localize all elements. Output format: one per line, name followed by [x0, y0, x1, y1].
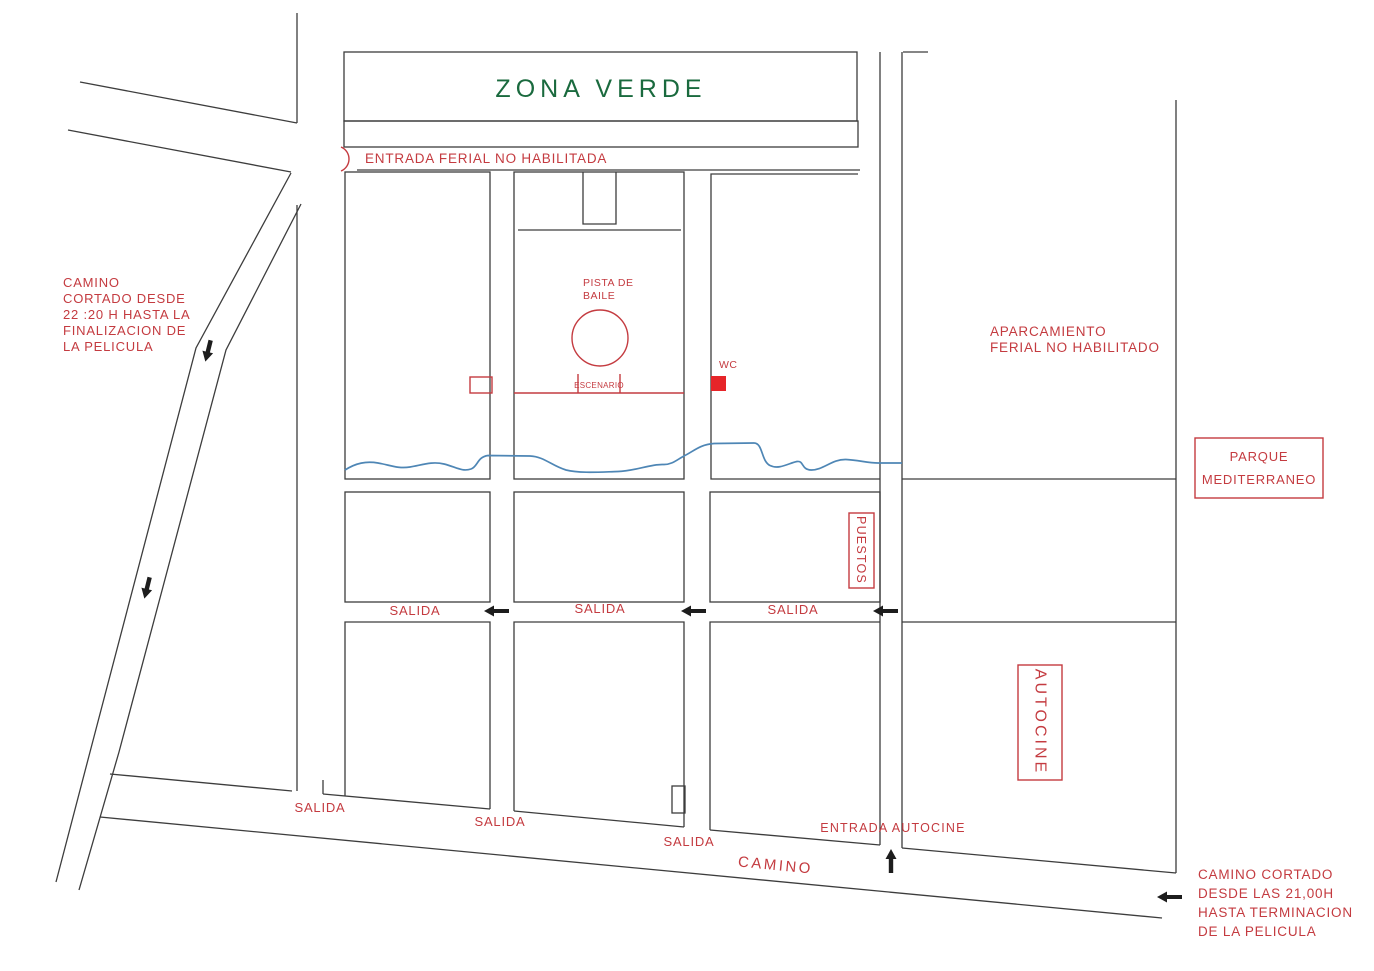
salida-label: SALIDA: [389, 603, 440, 618]
fairground-map: ZONA VERDE ENTRADA FERIAL NO HABILITADA …: [0, 0, 1374, 971]
label-line: APARCAMIENTO: [990, 324, 1106, 339]
aparcamiento-label: APARCAMIENTO FERIAL NO HABILITADO: [990, 324, 1160, 355]
stream-line: [345, 443, 902, 472]
zona-verde-title: ZONA VERDE: [495, 75, 706, 103]
escenario-label: ESCENARIO: [574, 381, 624, 390]
road-line: [68, 130, 291, 172]
block-outline: [514, 172, 684, 479]
block-notch: [583, 172, 616, 224]
left-road-closure-note: CAMINO CORTADO DESDE 22 :20 H HASTA LA F…: [63, 275, 191, 354]
note-line: CAMINO CORTADO: [1198, 867, 1333, 882]
autocine-block-bottom: [902, 848, 1176, 873]
block-outline: [711, 174, 880, 479]
bottom-road-line: [100, 817, 1162, 918]
label-line: PARQUE: [1230, 449, 1289, 464]
salida-labels-mid: SALIDA SALIDA SALIDA: [389, 601, 818, 618]
arrow-left-icon: [484, 606, 509, 617]
salida-label: SALIDA: [294, 800, 345, 815]
block-outline: [345, 622, 490, 809]
block-outline: [710, 622, 880, 830]
map-canvas: ZONA VERDE ENTRADA FERIAL NO HABILITADA …: [0, 0, 1374, 971]
note-line: FINALIZACION DE: [63, 323, 186, 338]
direction-arrows: [139, 339, 1182, 903]
label-line: MEDITERRANEO: [1202, 472, 1316, 487]
zona-verde-strip: [344, 121, 858, 147]
entrada-autocine-label: ENTRADA AUTOCINE: [820, 821, 965, 835]
parque-box: [1195, 438, 1323, 498]
arrow-left-icon: [873, 606, 898, 617]
pista-de-baile-label: PISTA DE BAILE: [583, 277, 634, 302]
salida-label: SALIDA: [474, 814, 525, 829]
block-outline: [514, 622, 684, 827]
block-bottom-edge: [323, 794, 490, 809]
road-line: [80, 82, 297, 123]
salida-label: SALIDA: [574, 601, 625, 616]
block-bottom-edge: [110, 774, 292, 791]
small-red-booth: [470, 377, 492, 393]
note-line: CORTADO DESDE: [63, 291, 186, 306]
autocine-label: AUTOCINE: [1032, 669, 1049, 775]
parque-mediterraneo-label: PARQUE MEDITERRANEO: [1202, 449, 1316, 487]
gate-rect: [672, 786, 685, 813]
arrow-up-icon: [886, 849, 897, 873]
block-outline: [345, 172, 490, 479]
blocks-row-1: [345, 172, 880, 479]
entrance-arc: [341, 147, 349, 171]
arrow-left-icon: [681, 606, 706, 617]
blocks-row-2: [345, 492, 880, 602]
block-outline: [345, 492, 490, 602]
note-line: DE LA PELICULA: [1198, 924, 1317, 939]
blocks-row-3: [110, 622, 880, 845]
wc-square: [711, 376, 726, 391]
wc-label: WC: [719, 359, 738, 371]
arrow-down-icon: [200, 339, 216, 363]
salida-label: SALIDA: [663, 834, 714, 849]
entrada-ferial-label: ENTRADA FERIAL NO HABILITADA: [365, 151, 607, 166]
arrow-down-icon: [139, 576, 155, 600]
block-bottom-edge: [514, 811, 684, 827]
dance-floor-circle: [572, 310, 628, 366]
note-line: LA PELICULA: [63, 339, 153, 354]
label-line: PISTA DE: [583, 277, 634, 289]
block-outline: [514, 492, 684, 602]
note-line: 22 :20 H HASTA LA: [63, 307, 191, 322]
puestos-label: PUESTOS: [854, 516, 868, 584]
note-line: DESDE LAS 21,00H: [1198, 886, 1334, 901]
salida-label: SALIDA: [767, 602, 818, 617]
label-line: FERIAL NO HABILITADO: [990, 340, 1160, 355]
road-network: [56, 13, 1162, 918]
camino-label: CAMINO: [737, 853, 813, 877]
label-line: BAILE: [583, 290, 615, 302]
note-line: HASTA TERMINACION: [1198, 905, 1353, 920]
right-road-closure-note: CAMINO CORTADO DESDE LAS 21,00H HASTA TE…: [1198, 867, 1353, 939]
arrow-left-icon: [1157, 892, 1182, 903]
note-line: CAMINO: [63, 275, 120, 290]
